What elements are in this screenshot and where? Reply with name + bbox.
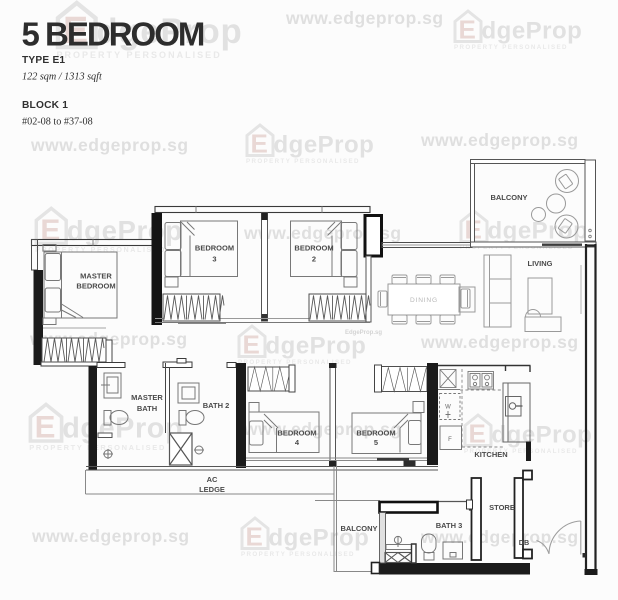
svg-text:BEDROOM: BEDROOM [294,244,333,253]
svg-text:3: 3 [212,255,216,264]
svg-text:LEDGE: LEDGE [199,485,225,494]
svg-text:2: 2 [312,255,316,264]
svg-text:5: 5 [374,438,378,447]
svg-text:DINING: DINING [410,297,438,304]
svg-text:#02-08 to #37-08: #02-08 to #37-08 [22,117,93,128]
svg-text:BALCONY: BALCONY [490,193,527,202]
svg-text:STORE: STORE [489,503,515,512]
svg-text:BLOCK 1: BLOCK 1 [22,100,68,111]
svg-text:BEDROOM: BEDROOM [277,429,316,438]
svg-text:MASTER: MASTER [131,393,163,402]
svg-text:MASTER: MASTER [80,272,112,281]
svg-text:W: W [445,405,451,411]
svg-text:TYPE E1: TYPE E1 [22,55,65,66]
svg-text:BEDROOM: BEDROOM [195,244,234,253]
svg-text:DB: DB [519,538,529,547]
svg-text:F: F [448,437,452,443]
svg-text:KITCHEN: KITCHEN [474,450,507,459]
svg-text:BEDROOM: BEDROOM [76,282,115,291]
svg-text:LIVING: LIVING [527,259,552,268]
svg-text:BALCONY: BALCONY [340,524,377,533]
svg-text:122 sqm / 1313 sqft: 122 sqm / 1313 sqft [22,72,103,83]
svg-text:AC: AC [207,475,218,484]
svg-text:BATH 2: BATH 2 [203,401,230,410]
svg-text:EdgeProp.sg: EdgeProp.sg [345,330,382,336]
svg-text:BEDROOM: BEDROOM [356,429,395,438]
svg-text:BATH: BATH [137,404,157,413]
svg-text:BATH 3: BATH 3 [436,521,463,530]
svg-text:5 BEDROOM: 5 BEDROOM [22,16,204,53]
